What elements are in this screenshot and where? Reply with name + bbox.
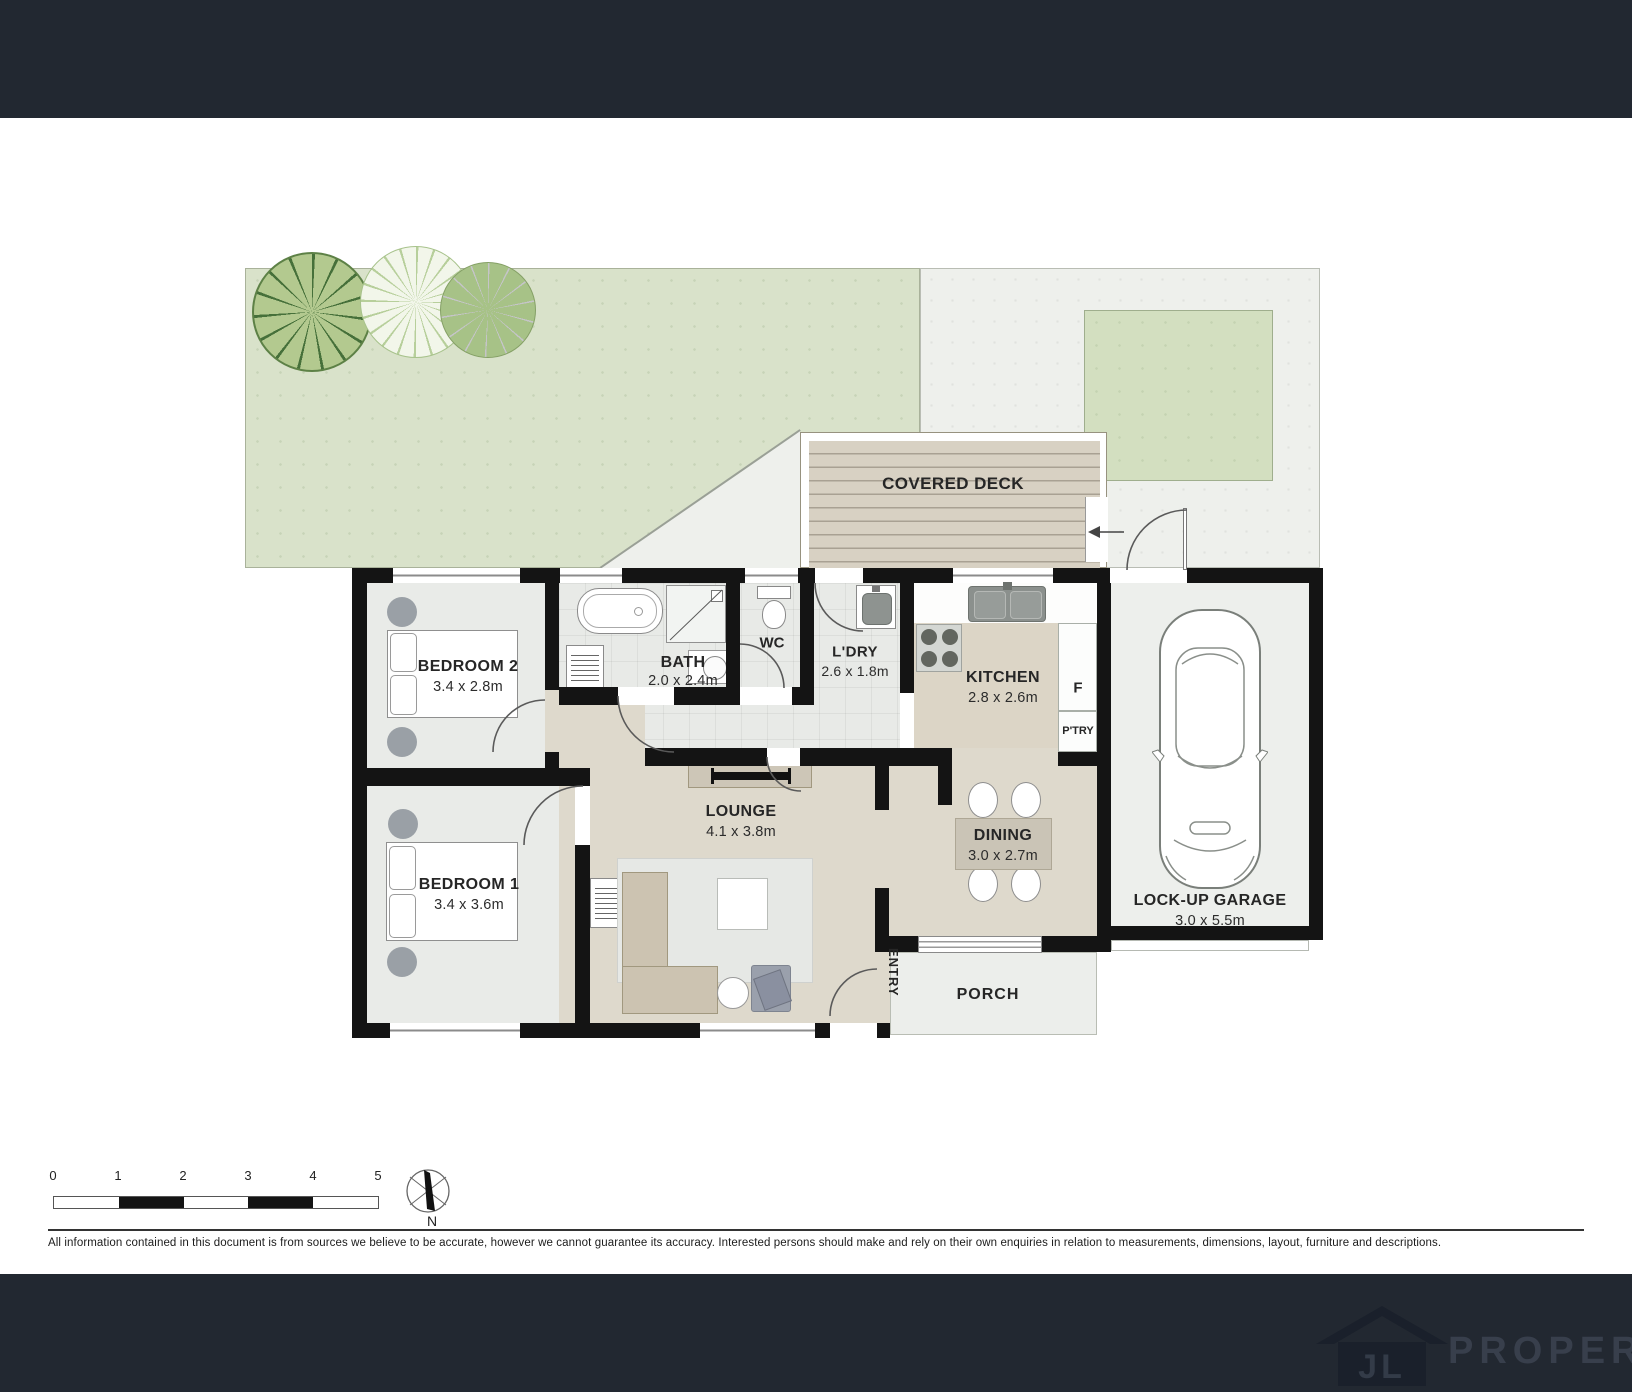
floor-plan-page: COVERED DECK <box>0 0 1632 1392</box>
bath-dims: 2.0 x 2.4m <box>648 673 718 689</box>
garage-apron <box>1111 940 1309 951</box>
wall <box>645 748 767 766</box>
kitchen-dims: 2.8 x 2.6m <box>968 690 1038 706</box>
tree-icon <box>252 252 372 372</box>
bedside-table <box>387 597 417 627</box>
wall <box>1309 568 1323 940</box>
wall <box>875 766 889 810</box>
pantry-label: P'TRY <box>1062 725 1094 737</box>
wall <box>900 583 914 693</box>
garage-dims: 3.0 x 5.5m <box>1175 913 1245 929</box>
tree-icon <box>440 262 536 358</box>
wall <box>1097 568 1111 952</box>
wall <box>520 1023 700 1038</box>
door-opening <box>618 687 674 705</box>
kitchen-label: KITCHEN <box>966 669 1040 687</box>
window <box>745 570 798 581</box>
sofa <box>622 966 718 1014</box>
wall <box>520 568 560 583</box>
window <box>393 570 520 581</box>
svg-text:JL: JL <box>1358 1348 1406 1386</box>
scale-tick-label: 2 <box>176 1168 190 1183</box>
wall <box>800 748 952 766</box>
bedside-table <box>387 727 417 757</box>
covered-deck <box>800 432 1107 568</box>
toilet-tank <box>757 586 791 599</box>
lounge-dims: 4.1 x 3.8m <box>706 824 776 840</box>
entry-label: ENTRY <box>886 948 901 1028</box>
bedside-table <box>387 947 417 977</box>
armchair <box>751 965 791 1012</box>
dining-chair <box>1011 866 1041 902</box>
bedside-table <box>388 809 418 839</box>
wall <box>575 768 590 786</box>
deck-planks <box>809 441 1100 568</box>
gate-leaf <box>1183 508 1187 570</box>
wall <box>726 583 740 687</box>
entry-door-opening <box>830 1023 877 1038</box>
wc-label: WC <box>760 635 785 652</box>
pillow <box>389 894 416 938</box>
top-header-band <box>0 0 1632 118</box>
bedroom2-dims: 3.4 x 2.8m <box>433 679 503 695</box>
tv-icon <box>714 772 788 780</box>
pillow <box>390 633 417 672</box>
wall <box>622 568 745 583</box>
garage-label: LOCK-UP GARAGE <box>1134 892 1287 910</box>
porch-label: PORCH <box>957 986 1020 1004</box>
dining-dims: 3.0 x 2.7m <box>968 848 1038 864</box>
laundry-dims: 2.6 x 1.8m <box>821 663 888 679</box>
wall <box>800 583 814 687</box>
wall <box>352 568 367 1038</box>
shower <box>666 585 726 643</box>
fridge-label: F <box>1073 680 1082 697</box>
wall <box>674 687 740 705</box>
car-icon <box>1152 604 1268 894</box>
divider-line <box>48 1229 1584 1231</box>
wall <box>792 687 814 705</box>
door-opening <box>740 687 792 705</box>
porch-steps <box>918 936 1042 953</box>
window <box>953 570 1053 581</box>
window <box>700 1025 815 1036</box>
scale-tick-label: 5 <box>371 1168 385 1183</box>
bedroom1-dims: 3.4 x 3.6m <box>434 897 504 913</box>
bedroom2-label: BEDROOM 2 <box>418 658 519 676</box>
lounge-label: LOUNGE <box>706 803 777 821</box>
wall <box>545 583 559 690</box>
window <box>390 1025 520 1036</box>
dining-label: DINING <box>974 827 1032 845</box>
jl-house-logo-icon: JL <box>1316 1302 1448 1388</box>
laundry-tub <box>856 585 896 629</box>
dining-chair <box>968 782 998 818</box>
side-table <box>717 977 749 1009</box>
laundry-label: L'DRY <box>832 644 878 661</box>
wall <box>1042 936 1100 952</box>
door-opening <box>815 568 863 583</box>
door-opening <box>575 786 590 845</box>
bathtub <box>577 588 663 634</box>
gate-opening <box>1110 568 1187 583</box>
wall <box>545 752 559 768</box>
scale-bar <box>53 1196 379 1209</box>
wall <box>875 888 889 952</box>
scale-tick-label: 3 <box>241 1168 255 1183</box>
coffee-table <box>717 878 768 930</box>
wall <box>575 845 590 1023</box>
wall <box>938 748 952 805</box>
tv-icon <box>788 768 791 784</box>
wall <box>352 768 575 786</box>
wall <box>815 1023 830 1038</box>
door-opening <box>767 748 800 766</box>
dining-chair <box>1011 782 1041 818</box>
deck-step-notch <box>1085 497 1108 562</box>
scale-tick-label: 1 <box>111 1168 125 1183</box>
wall <box>1058 752 1097 766</box>
kitchen-sink <box>968 586 1046 622</box>
window <box>560 570 622 581</box>
stove-cooktop <box>916 624 962 672</box>
disclaimer-text: All information contained in this docume… <box>48 1237 1523 1249</box>
dining-chair <box>968 866 998 902</box>
scale-tick-label: 0 <box>46 1168 60 1183</box>
hall-floor <box>559 697 645 768</box>
wall <box>798 568 815 583</box>
covered-deck-label: COVERED DECK <box>882 474 1024 494</box>
wall <box>863 568 953 583</box>
scale-tick-label: 4 <box>306 1168 320 1183</box>
fridge-space <box>1058 623 1097 711</box>
bath-label: BATH <box>661 654 706 672</box>
pillow <box>390 675 417 715</box>
pillow <box>389 846 416 890</box>
wall <box>352 1023 390 1038</box>
bedroom1-label: BEDROOM 1 <box>419 876 520 894</box>
wall <box>1187 568 1323 583</box>
svg-text:N: N <box>427 1213 437 1229</box>
lawn-patch <box>1084 310 1273 481</box>
wall <box>559 687 618 705</box>
toilet-bowl <box>762 600 786 629</box>
logo-wordmark: PROPERTY <box>1448 1330 1632 1373</box>
north-compass-icon: N <box>400 1164 460 1230</box>
tv-icon <box>711 768 714 784</box>
wardrobe-icon <box>566 645 604 689</box>
